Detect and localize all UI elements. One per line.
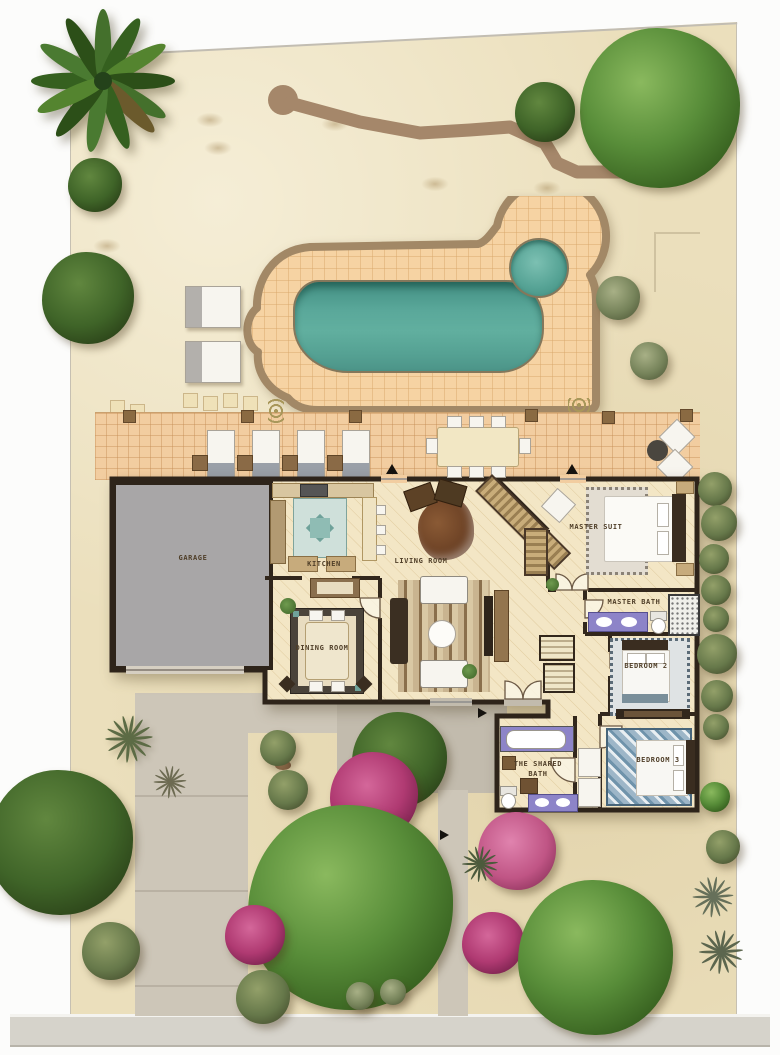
pillow <box>657 531 669 555</box>
rug-accent <box>293 611 299 617</box>
hedge-shrub <box>701 505 737 541</box>
loveseat <box>420 576 468 604</box>
agave-plant <box>458 842 502 886</box>
nightstand <box>676 563 694 576</box>
outdoor-chair <box>426 438 438 454</box>
side-table <box>192 455 208 471</box>
outdoor-chair <box>447 466 462 478</box>
site-line <box>654 232 700 234</box>
side-table <box>282 455 298 471</box>
bar-stool <box>376 545 386 555</box>
hedge-shrub <box>699 544 729 574</box>
bar-stool <box>376 505 386 515</box>
sink <box>596 617 612 627</box>
sage-shrub <box>380 979 406 1005</box>
sink <box>621 617 637 627</box>
double-vanity <box>588 612 648 632</box>
potted-plant <box>546 578 559 591</box>
double-vanity <box>528 794 578 812</box>
pillow <box>673 770 684 791</box>
sidewalk <box>10 1014 770 1047</box>
hedge-shrub <box>698 472 732 506</box>
driveway-seam <box>135 890 248 892</box>
console-top <box>317 582 353 594</box>
sage-shrub <box>630 342 668 380</box>
dryer <box>578 778 601 807</box>
dining-chair <box>309 610 323 621</box>
sink <box>556 798 570 807</box>
bath-cabinet <box>520 778 538 794</box>
stepping-stone <box>183 393 198 408</box>
range-cooktop <box>300 484 328 497</box>
hedge-shrub <box>701 680 733 712</box>
bathtub <box>506 730 566 749</box>
driveway-seam <box>135 985 248 987</box>
headboard <box>622 640 668 650</box>
shrub <box>260 730 296 766</box>
rug-medallion <box>310 518 330 538</box>
large-tree <box>580 28 740 188</box>
living-room-label: LIVING ROOM <box>395 557 448 565</box>
lounger-backrest <box>186 342 202 382</box>
sink <box>535 798 549 807</box>
shrub <box>236 970 290 1024</box>
kitchen-island-rug <box>293 498 347 558</box>
closet-shelves <box>544 664 574 692</box>
garage-label: GARAGE <box>179 554 208 562</box>
planter-strip <box>268 398 284 424</box>
agave-plant <box>688 872 738 922</box>
planter-strip <box>568 398 590 412</box>
outdoor-chair <box>469 466 484 478</box>
shower <box>668 594 700 636</box>
dresser-console <box>616 709 690 719</box>
potted-plant <box>462 664 477 679</box>
loveseat <box>420 660 468 688</box>
outdoor-chair <box>491 416 506 428</box>
bedroom3-label: BEDROOM 3 <box>636 756 679 764</box>
pool-lounger <box>185 341 241 383</box>
breakfast-bar <box>362 497 377 561</box>
scrub-patch <box>92 238 122 254</box>
sage-shrub <box>596 276 640 320</box>
palm-tree <box>28 6 178 156</box>
tv-console <box>484 596 493 656</box>
pergola-post <box>680 409 693 422</box>
spa-hot-tub <box>509 238 569 298</box>
coffee-table <box>428 620 456 648</box>
entry-arrow-icon <box>478 708 487 718</box>
outdoor-dining-table <box>437 427 519 467</box>
nightstand <box>676 481 694 494</box>
hedge-shrub <box>697 634 737 674</box>
headboard <box>686 740 695 794</box>
tree <box>42 252 134 344</box>
site-plan-sheet: GARAGE KITCHEN LIVING ROOM DINING ROOM M… <box>0 0 780 1055</box>
swimming-pool <box>293 280 544 373</box>
pergola-post <box>123 410 136 423</box>
large-tree <box>518 880 673 1035</box>
shrub <box>515 82 575 142</box>
bed-runner <box>622 694 668 703</box>
round-table <box>647 440 668 461</box>
dining-chair <box>331 610 345 621</box>
headboard <box>672 494 686 562</box>
stepping-stone <box>203 396 218 411</box>
washer <box>578 748 601 777</box>
scrub-patch <box>203 140 233 156</box>
bedroom3-bed <box>636 740 688 796</box>
shrub <box>68 158 122 212</box>
bookshelf <box>524 528 548 576</box>
yucca-plant <box>100 710 158 768</box>
potted-plant <box>280 598 296 614</box>
pergola-post <box>525 409 538 422</box>
dining-chair <box>309 681 323 692</box>
master-bath-label: MASTER BATH <box>608 598 661 606</box>
tub-surround <box>500 726 574 752</box>
closet-shelves <box>540 636 574 660</box>
desert-grass <box>150 762 190 802</box>
dining-chair <box>331 681 345 692</box>
outdoor-chair <box>469 416 484 428</box>
bedroom2-label: BEDROOM 2 <box>624 662 667 670</box>
side-table <box>237 455 253 471</box>
entry-arrow-icon <box>566 464 578 474</box>
kitchen-cabinets <box>270 500 286 564</box>
bar-stool <box>376 525 386 535</box>
bougainvillea <box>462 912 524 974</box>
garage-floor <box>114 483 271 668</box>
toilet <box>651 618 666 634</box>
toilet <box>501 793 516 809</box>
shrub <box>82 922 140 980</box>
pergola-post <box>602 411 615 424</box>
agave-plant <box>694 925 748 979</box>
hedge-shrub <box>703 606 729 632</box>
sage-shrub <box>346 982 374 1010</box>
outdoor-chair <box>447 416 462 428</box>
hedge-shrub <box>701 575 731 605</box>
lounger-backrest <box>186 287 202 327</box>
kitchen-label: KITCHEN <box>307 560 341 568</box>
dining-room-label: DINING ROOM <box>296 644 349 652</box>
pergola-post <box>241 410 254 423</box>
shared-bath-label-line1: THE SHARED <box>514 760 562 768</box>
outdoor-chair <box>519 438 531 454</box>
site-line <box>654 232 656 292</box>
pool-lounger <box>185 286 241 328</box>
pillow <box>657 503 669 527</box>
sofa <box>390 598 408 664</box>
shrub <box>706 830 740 864</box>
bougainvillea <box>225 905 285 965</box>
pergola-post <box>349 410 362 423</box>
side-table <box>327 455 343 471</box>
shrub <box>268 770 308 810</box>
hall-console <box>310 578 360 598</box>
entry-arrow-icon <box>440 830 449 840</box>
media-cabinet <box>494 590 509 662</box>
entry-arrow-icon <box>386 464 398 474</box>
hedge-shrub <box>703 714 729 740</box>
shrub <box>700 782 730 812</box>
cowhide-rug <box>418 498 474 560</box>
dresser-top <box>624 711 682 717</box>
shared-bath-label-line2: BATH <box>528 770 547 778</box>
master-suite-label: MASTER SUIT <box>570 523 623 531</box>
scrub-patch <box>195 112 225 128</box>
